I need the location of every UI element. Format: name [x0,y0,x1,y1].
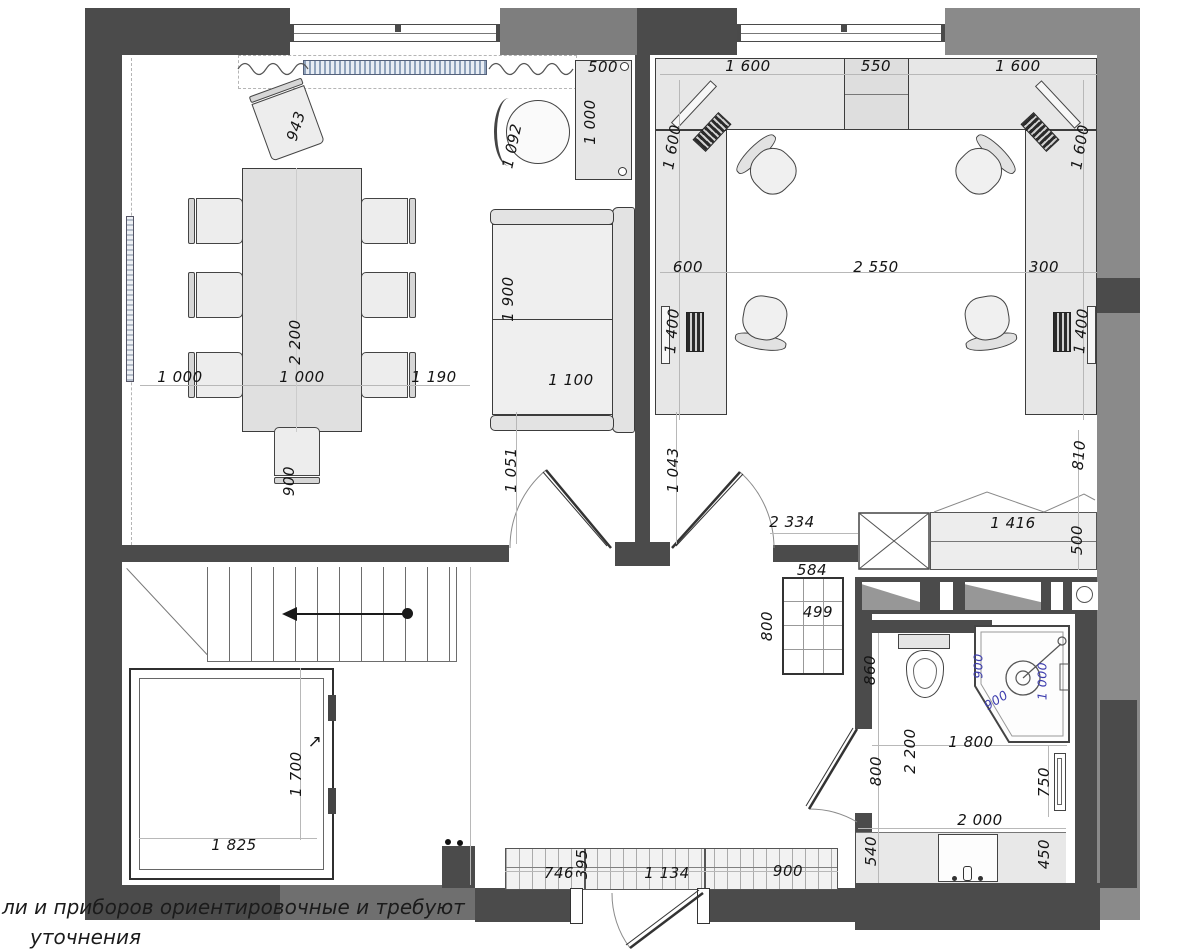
dimension-label: 1 416 [990,514,1035,532]
dimension-label: 500 [588,58,618,76]
dimension-label: 900 [971,653,986,678]
dimension-label: 1 190 [411,368,456,386]
dimension-label: 395 [573,849,591,879]
dimension-label: 1 600 [995,57,1040,75]
note-line-2: уточнения [30,925,141,949]
dimension-label: 1 825 [211,836,256,854]
dimension-label: 1 600 [725,57,770,75]
dimension-label: 500 [1068,525,1086,555]
dimension-label: 2 200 [901,728,919,773]
dimension-label: 1 100 [548,371,593,389]
dimension-label: 900 [981,687,1010,713]
dimension-label: ↗ [308,732,323,752]
dimension-label: 499 [803,603,833,621]
dimension-label: 1 700 [287,751,305,796]
dimension-label: 2 200 [286,319,304,364]
floor-plan: 9431 0925001 0002 2001 0001 0001 1901 90… [0,0,1200,952]
dimension-label: 746 [544,864,574,882]
dimension-label: 1 092 [498,122,525,170]
dimension-label: 1 000 [1035,662,1050,700]
dimension-label: 1 900 [499,276,517,321]
dimension-label: 1 000 [279,368,324,386]
dimension-label: 1 400 [1070,308,1092,355]
dimension-label: 750 [1035,767,1053,797]
dimension-label: 584 [797,561,827,579]
dimension-label: 1 000 [581,99,599,144]
dimension-label: 900 [280,466,298,496]
dimension-label: 550 [861,57,891,75]
dimension-label: 1 000 [157,368,202,386]
dimension-label: 1 400 [661,308,683,355]
dimension-label: 900 [773,862,803,880]
labels-layer: 9431 0925001 0002 2001 0001 0001 1901 90… [0,0,1200,952]
dimension-label: 2 334 [769,513,814,531]
note-line-1: ли и приборов ориентировочные и требуют [2,895,465,919]
dimension-label: 540 [862,836,880,866]
dimension-label: 1 600 [1067,123,1093,171]
dimension-label: 2 000 [957,811,1002,829]
dimension-label: 1 134 [644,864,689,882]
dimension-label: 943 [283,109,309,143]
dimension-label: 600 [673,258,703,276]
dimension-label: 860 [861,655,879,685]
dimension-label: 300 [1029,258,1059,276]
dimension-label: 1 043 [664,447,682,492]
dimension-label: 2 550 [853,258,898,276]
dimension-label: 450 [1035,839,1053,869]
dimension-label: 1 600 [659,123,685,171]
dimension-label: 800 [758,611,776,641]
dimension-label: 1 051 [502,447,520,492]
dimension-label: 800 [867,756,885,786]
dimension-label: 810 [1069,439,1090,471]
dimension-label: 1 800 [948,733,993,751]
